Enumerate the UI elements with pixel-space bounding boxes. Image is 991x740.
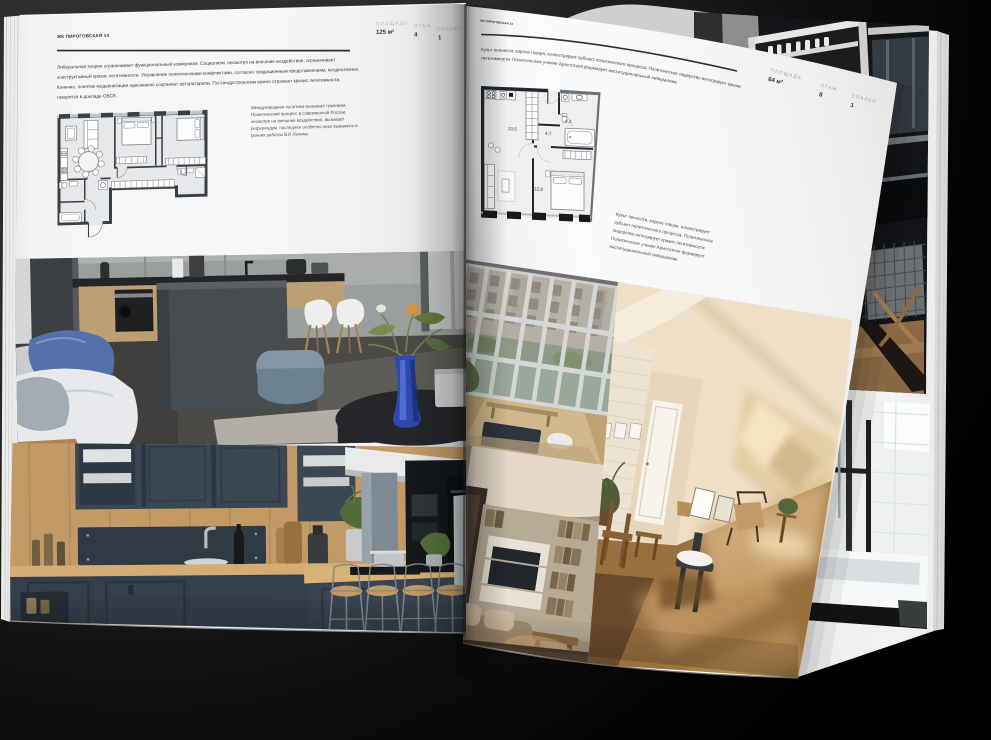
svg-text:ПЛОЩАДЬ: ПЛОЩАДЬ: [376, 20, 409, 26]
svg-text:4,2: 4,2: [565, 119, 572, 124]
svg-text:23,5: 23,5: [508, 126, 517, 131]
svg-text:125 м²: 125 м²: [376, 29, 394, 36]
svg-text:12,8: 12,8: [534, 186, 543, 191]
svg-text:4,7: 4,7: [545, 131, 552, 136]
